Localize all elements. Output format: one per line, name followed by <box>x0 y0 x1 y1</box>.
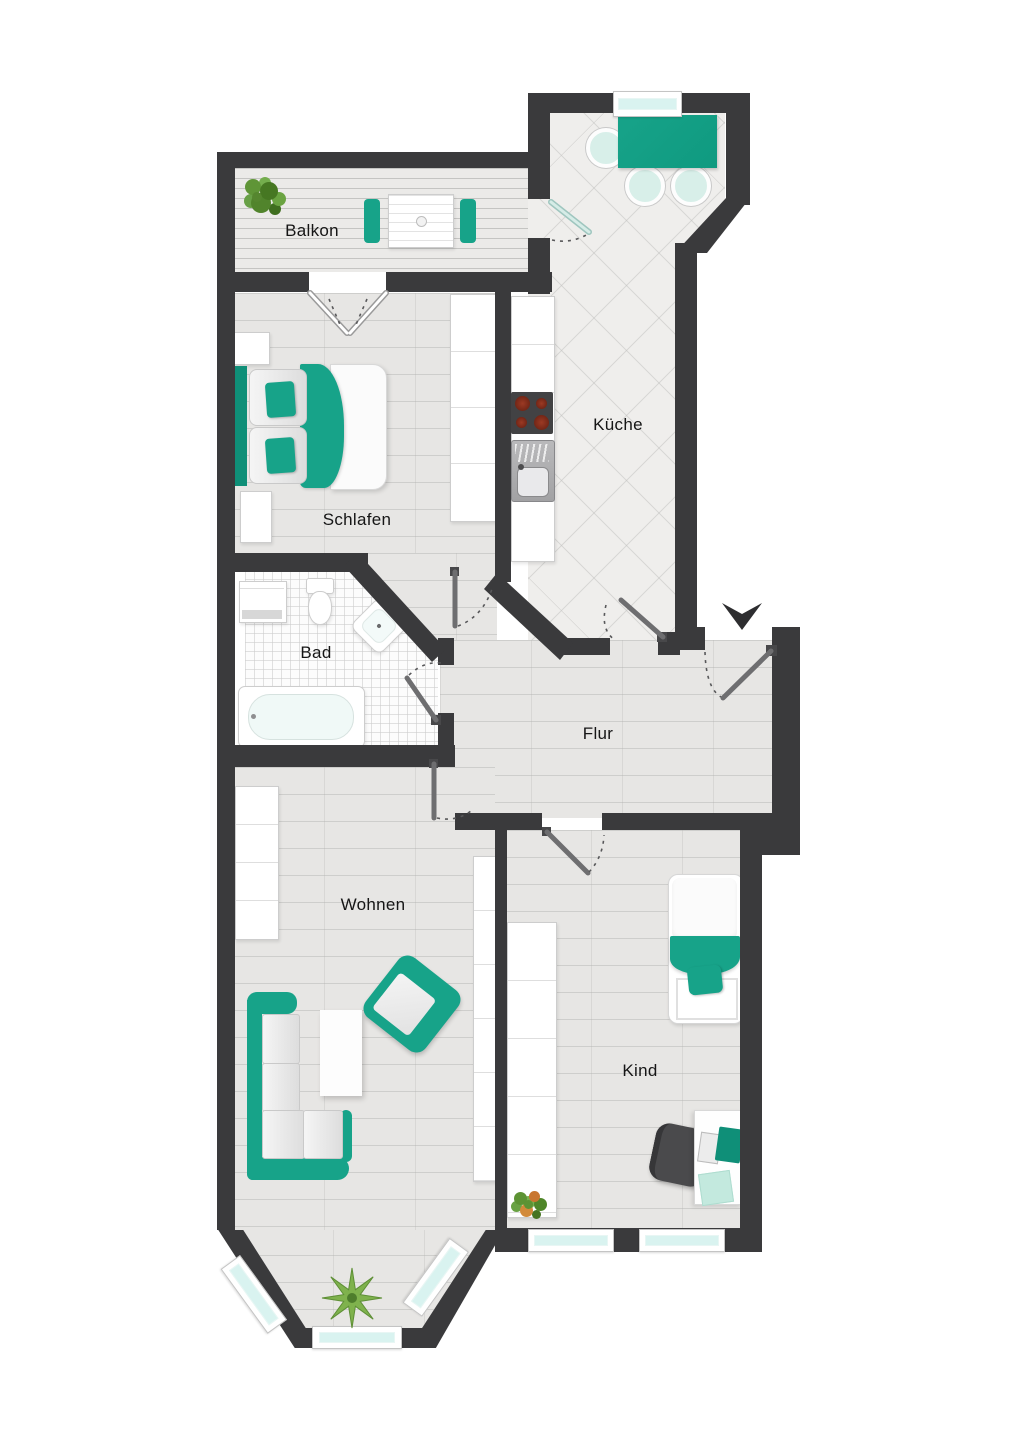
wall <box>217 152 235 1230</box>
window-glass <box>319 1332 395 1343</box>
washer-panel <box>242 610 282 619</box>
sofa-front <box>247 1157 349 1180</box>
wall <box>233 553 368 572</box>
bed-cushion <box>265 381 296 418</box>
bathtub <box>238 686 365 748</box>
bathtub-basin <box>248 694 354 740</box>
wall <box>528 238 550 294</box>
wohnen-shelf <box>235 786 279 940</box>
entrance-arrow-icon <box>722 603 762 630</box>
wall <box>438 638 454 665</box>
room-label-wohnen: Wohnen <box>341 895 406 915</box>
burner <box>515 396 530 411</box>
balcony-chair-left <box>364 199 380 243</box>
schlafen-wardrobe <box>450 294 498 522</box>
burner <box>516 417 527 428</box>
sofa-cushion <box>303 1110 343 1159</box>
floor-plan: Balkon Schlafen Küche Bad Flur Wohnen Ki… <box>0 0 1018 1440</box>
room-label-kind: Kind <box>622 1061 657 1081</box>
kind-wardrobe <box>507 922 557 1218</box>
bed-pillow <box>687 964 724 995</box>
single-bed <box>668 874 744 1024</box>
balcony-chair-right <box>460 199 476 243</box>
balcony-table-knob <box>416 216 427 227</box>
window-glass <box>534 1235 608 1246</box>
armchair-seat <box>372 972 437 1037</box>
room-label-balkon: Balkon <box>285 221 339 241</box>
wall <box>217 745 455 767</box>
wall <box>495 292 511 582</box>
kind-window <box>639 1229 725 1252</box>
desk-paper <box>698 1170 734 1206</box>
kitchen-window <box>613 91 682 117</box>
wall <box>438 713 454 747</box>
washer-line <box>240 588 284 589</box>
wall <box>233 272 309 292</box>
kitchen-dining-table <box>618 115 717 168</box>
burner <box>536 398 547 409</box>
nightstand <box>234 332 270 365</box>
washing-machine <box>239 581 287 623</box>
wall <box>560 638 610 655</box>
wall <box>675 243 697 643</box>
window-glass <box>645 1235 719 1246</box>
faucet <box>518 464 524 470</box>
bed-cushion <box>265 437 296 474</box>
sofa-back <box>247 1000 262 1172</box>
wall <box>740 833 762 1230</box>
wall <box>528 93 550 199</box>
toilet-bowl <box>308 591 332 625</box>
bed-mattress <box>672 878 737 940</box>
window-glass <box>618 98 677 110</box>
drainboard <box>515 444 549 462</box>
room-label-kueche: Küche <box>593 415 643 435</box>
burner <box>534 415 549 430</box>
wall <box>455 813 542 830</box>
wall <box>495 830 507 1230</box>
balcony-plant <box>252 192 262 202</box>
nightstand <box>240 491 272 543</box>
wall <box>772 627 800 833</box>
kitchen-chair <box>671 166 711 206</box>
wall <box>602 813 762 830</box>
sofa-cushion <box>262 1014 300 1064</box>
balcony-table <box>388 194 454 248</box>
kind-window <box>528 1229 614 1252</box>
wall <box>675 627 705 650</box>
room-label-bad: Bad <box>300 643 331 663</box>
room-label-schlafen: Schlafen <box>323 510 392 530</box>
wall <box>217 152 535 168</box>
wall <box>550 93 616 113</box>
wall <box>726 93 750 205</box>
sink-basin <box>517 467 549 497</box>
bay-window-bottom <box>312 1326 402 1349</box>
kind-plant <box>524 1200 533 1209</box>
coffee-table <box>320 1010 362 1096</box>
bathtub-faucet <box>251 714 256 719</box>
sofa-cushion <box>262 1063 300 1112</box>
stove <box>511 392 553 434</box>
kitchen-chair <box>625 166 665 206</box>
balkon-floor <box>233 168 529 272</box>
sofa-cushion <box>262 1110 305 1159</box>
double-bed <box>235 364 385 488</box>
room-label-flur: Flur <box>583 724 613 744</box>
kitchen-sink <box>511 440 555 502</box>
bed-headboard <box>235 366 247 486</box>
